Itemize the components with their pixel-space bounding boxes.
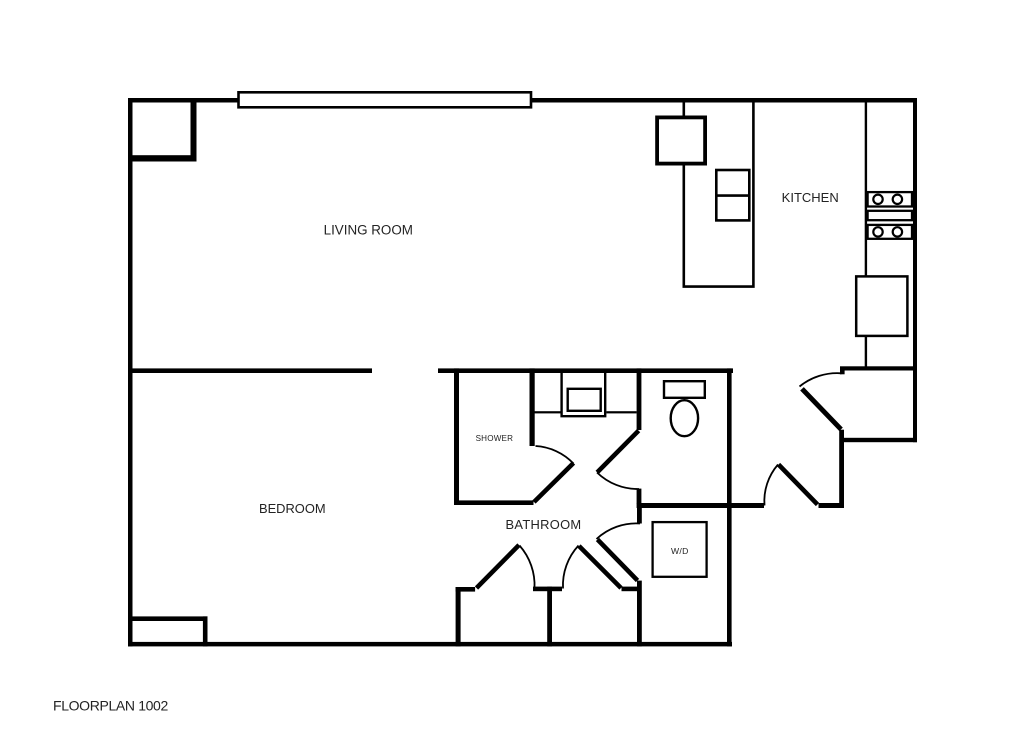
svg-text:W/D: W/D <box>671 546 689 556</box>
svg-text:LIVING ROOM: LIVING ROOM <box>324 223 413 238</box>
svg-text:FLOORPLAN 1002: FLOORPLAN 1002 <box>53 698 168 714</box>
svg-text:KITCHEN: KITCHEN <box>782 190 839 205</box>
svg-text:BATHROOM: BATHROOM <box>506 517 582 532</box>
svg-text:BEDROOM: BEDROOM <box>259 501 326 516</box>
svg-text:SHOWER: SHOWER <box>476 434 514 443</box>
